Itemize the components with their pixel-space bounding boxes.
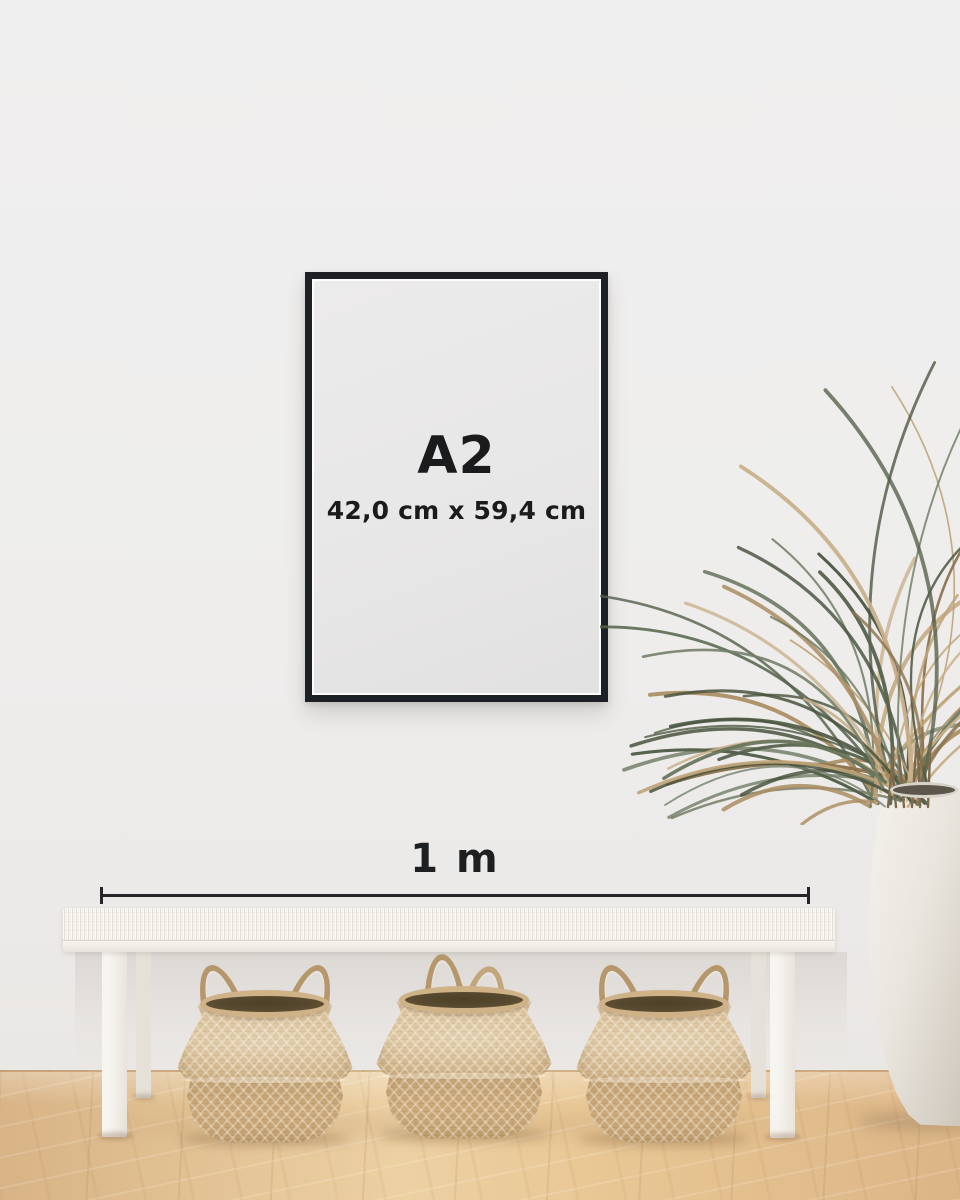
- basket-crease: [182, 1077, 348, 1083]
- bench-seat-weave: [63, 908, 835, 940]
- poster-size-label: A2: [417, 426, 495, 486]
- bench-foot-shadow: [765, 1133, 801, 1141]
- basket-rim: [399, 986, 529, 1014]
- poster-dimensions-label: 42,0 cm x 59,4 cm: [327, 496, 586, 525]
- bench-leg-front-left: [102, 950, 127, 1137]
- scale-bar-tick-left: [100, 887, 103, 904]
- scale-bar: 1 m: [101, 836, 809, 897]
- bench-foot-shadow: [133, 1094, 155, 1100]
- bench-leg-front-right: [770, 950, 795, 1138]
- poster-mat: A2 42,0 cm x 59,4 cm: [312, 279, 601, 695]
- bench-foot-shadow: [97, 1132, 133, 1140]
- bench-seat: [63, 908, 835, 952]
- basket-rim: [200, 990, 330, 1018]
- basket-crease: [381, 1073, 547, 1079]
- basket-body: [571, 1002, 757, 1144]
- basket-rim: [599, 990, 729, 1018]
- scale-bar-line: [101, 894, 809, 897]
- seagrass-basket-right: [571, 958, 757, 1144]
- basket-crease: [581, 1077, 747, 1083]
- seagrass-basket-middle: [371, 954, 557, 1140]
- palm-plant: [600, 315, 960, 825]
- poster-frame: A2 42,0 cm x 59,4 cm: [305, 272, 608, 702]
- bench-seat-frame: [63, 940, 835, 952]
- poster: A2 42,0 cm x 59,4 cm: [314, 281, 599, 693]
- room-scene: A2 42,0 cm x 59,4 cm 1 m: [0, 0, 960, 1200]
- vase-rim: [890, 782, 958, 798]
- seagrass-basket-left: [172, 958, 358, 1144]
- scale-bar-label: 1 m: [101, 836, 809, 882]
- bench-leg-back-left: [136, 950, 151, 1098]
- basket-body: [371, 998, 557, 1140]
- scale-bar-tick-right: [807, 887, 810, 904]
- basket-body: [172, 1002, 358, 1144]
